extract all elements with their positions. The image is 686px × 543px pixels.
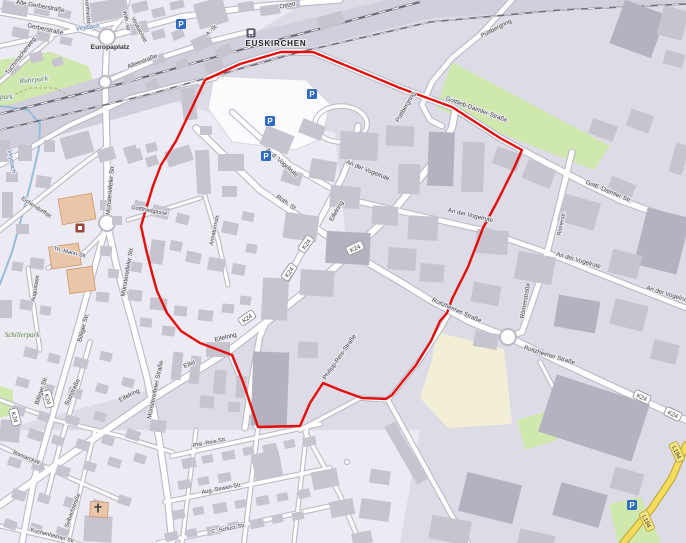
- parking-icon[interactable]: P: [176, 19, 186, 29]
- building: [149, 419, 167, 433]
- building: [11, 261, 23, 271]
- train-station-icon-part: [249, 35, 251, 37]
- building: [200, 126, 212, 135]
- building: [0, 300, 12, 318]
- building: [218, 154, 244, 171]
- roundabout: [500, 329, 516, 345]
- street-label: EUSKIRCHEN: [246, 39, 307, 48]
- building: [140, 317, 153, 327]
- building: [222, 186, 237, 197]
- roundabout: [99, 29, 115, 45]
- building: [397, 164, 420, 195]
- parking-icon-letter: P: [263, 152, 269, 161]
- street-label: Schillerpark: [5, 331, 40, 339]
- dead-end: [345, 460, 350, 465]
- church-cross-icon-part: [95, 506, 102, 508]
- building: [339, 131, 378, 161]
- train-station-icon: [247, 29, 256, 38]
- museum-poi-icon-part: [78, 226, 82, 230]
- building: [369, 469, 391, 486]
- parking-icon[interactable]: P: [307, 89, 317, 99]
- parking-icon-letter: P: [267, 117, 273, 126]
- building: [407, 215, 438, 241]
- building: [231, 263, 246, 276]
- church-cross-icon-part: [97, 504, 99, 513]
- parking-icon-letter: P: [178, 20, 184, 29]
- train-station-icon-part: [249, 30, 254, 34]
- street-label: Europaplatz: [91, 44, 130, 51]
- building: [16, 224, 29, 234]
- train-station-icon-part: [252, 35, 254, 37]
- building: [100, 245, 113, 256]
- landmark-building: [66, 266, 95, 293]
- landmark-building: [58, 193, 96, 225]
- building: [282, 212, 319, 242]
- landmark-building: [90, 502, 109, 518]
- building: [108, 269, 120, 279]
- building: [251, 450, 283, 481]
- building: [96, 291, 110, 302]
- building: [261, 277, 289, 320]
- parking-icon-letter: P: [309, 90, 315, 99]
- building: [299, 269, 334, 297]
- building: [329, 185, 361, 210]
- building: [35, 175, 52, 189]
- building: [195, 150, 211, 195]
- parking-icon[interactable]: P: [261, 151, 271, 161]
- building: [427, 132, 455, 187]
- building: [240, 295, 252, 305]
- building: [245, 243, 257, 254]
- building: [2, 192, 13, 218]
- building: [162, 325, 176, 336]
- building: [213, 370, 227, 395]
- map-viewport[interactable]: K24K24K24K24K24K24K24K24L194L194Alte Ger…: [0, 0, 686, 543]
- parking-icon[interactable]: P: [265, 116, 275, 126]
- museum-poi-icon: [76, 224, 85, 233]
- building: [44, 140, 55, 152]
- parking-icon[interactable]: P: [627, 500, 637, 510]
- map-canvas[interactable]: K24K24K24K24K24K24K24K24L194L194Alte Ger…: [0, 0, 686, 543]
- building: [251, 351, 290, 426]
- building: [387, 247, 416, 271]
- building: [222, 303, 235, 313]
- building: [298, 341, 319, 358]
- building: [18, 145, 32, 161]
- building: [29, 257, 44, 270]
- building: [461, 142, 485, 193]
- building: [174, 305, 188, 316]
- building: [419, 263, 444, 283]
- building: [200, 395, 215, 408]
- building: [127, 289, 142, 301]
- building: [371, 205, 398, 226]
- parking-icon-letter: P: [629, 501, 635, 510]
- building: [112, 216, 122, 225]
- building: [197, 309, 213, 322]
- building: [83, 515, 112, 542]
- building: [39, 305, 51, 315]
- roundabout: [99, 76, 111, 88]
- building: [385, 125, 414, 146]
- building: [359, 498, 391, 522]
- street-label: rpark: [0, 93, 14, 101]
- building: [228, 401, 241, 412]
